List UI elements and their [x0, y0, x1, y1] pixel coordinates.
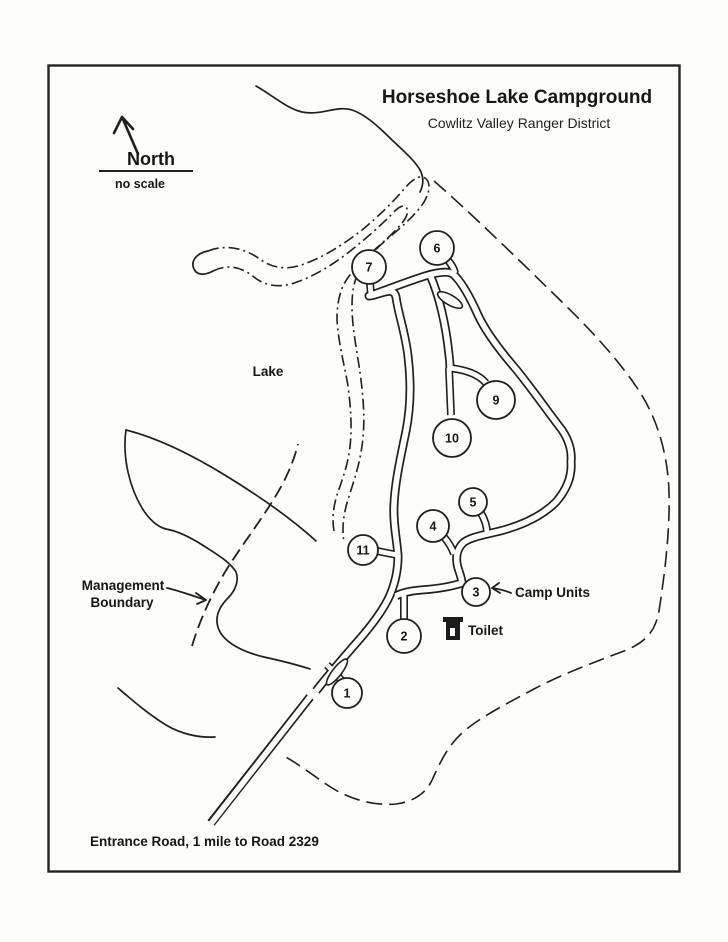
camp-site-number: 10 — [445, 432, 459, 446]
lake-label: Lake — [253, 364, 284, 379]
north-label: North — [127, 149, 175, 169]
roads-casing — [211, 259, 571, 823]
map-title: Horseshoe Lake Campground — [382, 87, 652, 108]
camp-units-arrow — [492, 583, 511, 593]
entrance-road-note: Entrance Road, 1 mile to Road 2329 — [90, 834, 319, 849]
toilet-icon — [443, 617, 463, 640]
lake-south-shore — [126, 430, 316, 541]
lake-horseshoe-tip — [193, 251, 213, 274]
roads-surface — [206, 259, 571, 830]
camp-site-number: 7 — [366, 261, 373, 275]
management-boundary-line — [192, 444, 298, 646]
map-subtitle: Cowlitz Valley Ranger District — [428, 115, 611, 131]
lake-inlet-and-promontory — [125, 430, 310, 669]
camp-site-number: 5 — [470, 496, 477, 510]
terrain-curve-bottom-left — [118, 688, 215, 737]
toilet-label: Toilet — [468, 623, 504, 638]
management-boundary-label-line2: Boundary — [90, 595, 153, 610]
compass: North no scale — [99, 117, 193, 191]
scanned-map-page: 123456791011 North no scale Horseshoe La… — [0, 0, 728, 942]
camp-site-number: 9 — [493, 394, 500, 408]
camp-site-number: 2 — [401, 630, 408, 644]
camp-site-number: 3 — [473, 586, 480, 600]
camp-site-number: 1 — [344, 687, 351, 701]
toilet-callout: Toilet — [443, 617, 504, 640]
camp-site-number: 4 — [430, 520, 437, 534]
camp-site-number: 11 — [356, 544, 369, 558]
management-boundary-label-line1: Management — [82, 578, 165, 593]
camp-units-callout: Camp Units — [492, 583, 590, 600]
camp-site-number: 6 — [434, 242, 441, 256]
camp-units-label: Camp Units — [515, 585, 590, 600]
management-boundary-callout: Management Boundary — [82, 578, 206, 610]
management-boundary-arrow — [167, 588, 206, 604]
no-scale-label: no scale — [115, 177, 165, 191]
campground-map: 123456791011 North no scale Horseshoe La… — [0, 0, 728, 942]
